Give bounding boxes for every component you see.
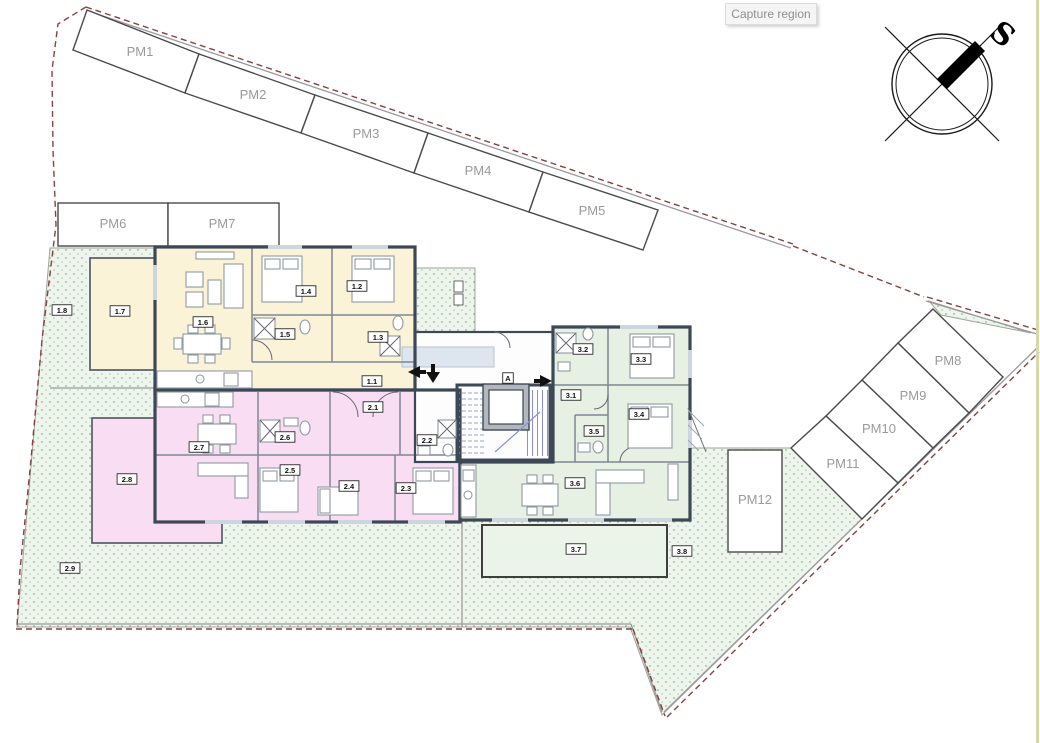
parking-label-PM5: PM5	[579, 203, 606, 218]
room-label-3.1: 3.1	[561, 390, 581, 401]
svg-text:1.3: 1.3	[373, 333, 383, 342]
parking-label-PM2: PM2	[240, 87, 267, 102]
svg-text:1.7: 1.7	[115, 307, 125, 316]
room-label-2.7: 2.7	[189, 442, 209, 453]
svg-text:3.1: 3.1	[566, 391, 576, 400]
vent-2	[454, 294, 463, 305]
armchair	[186, 272, 203, 287]
svg-text:3.2: 3.2	[578, 345, 588, 354]
parking-label-PM9: PM9	[900, 388, 927, 403]
room-label-2.2: 2.2	[417, 435, 437, 446]
room-label-1.3: 1.3	[368, 332, 388, 343]
sink	[418, 446, 430, 455]
svg-text:2.9: 2.9	[65, 564, 75, 573]
svg-text:2.2: 2.2	[422, 436, 432, 445]
sink	[284, 418, 298, 426]
sink	[464, 491, 472, 499]
svg-text:2.1: 2.1	[368, 403, 378, 412]
room-label-3.3: 3.3	[631, 354, 651, 365]
room-label-2.9: 2.9	[60, 563, 80, 574]
sideboard	[668, 464, 678, 500]
toilet	[393, 316, 403, 330]
stove	[463, 470, 474, 481]
shower	[254, 318, 275, 339]
svg-text:3.4: 3.4	[634, 410, 645, 419]
room-label-1.6: 1.6	[193, 317, 213, 328]
dining-table	[183, 334, 221, 354]
floor-plan-canvas: S PM1PM2PM3PM4PM5PM6PM7PM8PM9PM10PM11PM1…	[0, 0, 1040, 743]
parking-label-PM7: PM7	[209, 216, 236, 231]
room-label-2.3: 2.3	[396, 483, 416, 494]
svg-text:2.4: 2.4	[344, 482, 355, 491]
room-label-A: A	[503, 373, 514, 384]
svg-text:3.5: 3.5	[589, 427, 599, 436]
parking-label-PM8: PM8	[935, 353, 962, 368]
kitchen-counter	[157, 392, 233, 407]
svg-text:1.8: 1.8	[57, 306, 67, 315]
sink	[578, 443, 590, 452]
dining-table	[198, 424, 236, 444]
svg-text:3.8: 3.8	[677, 547, 687, 556]
svg-text:2.3: 2.3	[401, 484, 411, 493]
stove	[205, 393, 219, 406]
room-label-3.4: 3.4	[629, 409, 649, 420]
compass-rose: S	[885, 14, 1022, 141]
svg-text:3.7: 3.7	[571, 545, 581, 554]
room-label-2.8: 2.8	[117, 474, 137, 485]
coffee-table	[208, 280, 221, 304]
compass-needle	[937, 41, 985, 89]
svg-text:2.6: 2.6	[280, 433, 290, 442]
room-label-1.5: 1.5	[275, 329, 295, 340]
sofa	[198, 463, 248, 476]
parking-label-PM4: PM4	[465, 163, 492, 178]
parking-label-PM1: PM1	[127, 44, 154, 59]
svg-text:1.2: 1.2	[352, 282, 362, 291]
svg-text:2.5: 2.5	[285, 466, 295, 475]
sink	[558, 362, 570, 371]
svg-text:2.8: 2.8	[122, 475, 132, 484]
toilet	[583, 328, 593, 340]
room-label-3.5: 3.5	[584, 426, 604, 437]
room-label-3.7: 3.7	[566, 544, 586, 555]
room-label-1.7: 1.7	[110, 306, 130, 317]
shower	[438, 420, 456, 438]
room-label-3.2: 3.2	[573, 344, 593, 355]
parking-label-PM3: PM3	[353, 126, 380, 141]
room-label-2.6: 2.6	[275, 432, 295, 443]
room-label-1.4: 1.4	[296, 286, 316, 297]
toilet	[593, 441, 603, 453]
room-label-2.1: 2.1	[363, 402, 383, 413]
parking-label-PM12: PM12	[738, 492, 772, 507]
vent-1	[454, 281, 463, 292]
svg-text:1.4: 1.4	[301, 287, 312, 296]
toilet	[300, 320, 310, 334]
room-label-2.4: 2.4	[339, 481, 359, 492]
capture-region-tooltip: Capture region	[725, 3, 817, 25]
svg-text:1.6: 1.6	[198, 318, 208, 327]
sofa	[235, 476, 248, 498]
stair-treads-right	[527, 390, 550, 456]
room-label-3.8: 3.8	[672, 546, 692, 557]
room-label-1.1: 1.1	[362, 376, 382, 387]
dining-table	[522, 484, 558, 506]
sink	[196, 375, 204, 383]
toilet	[443, 444, 453, 456]
sink	[181, 395, 189, 403]
room-label-2.5: 2.5	[280, 465, 300, 476]
svg-text:A: A	[505, 374, 511, 383]
toilet	[300, 421, 310, 435]
parking-label-PM10: PM10	[862, 421, 896, 436]
svg-text:3.6: 3.6	[570, 479, 580, 488]
stair-treads-left	[459, 388, 486, 456]
capture-edge	[1036, 0, 1039, 743]
room-label-1.2: 1.2	[347, 281, 367, 292]
stove	[224, 373, 238, 386]
sofa	[224, 264, 243, 308]
armchair	[186, 292, 203, 307]
site-plan: S PM1PM2PM3PM4PM5PM6PM7PM8PM9PM10PM11PM1…	[0, 0, 1040, 743]
svg-text:1.1: 1.1	[367, 377, 377, 386]
sofa	[596, 483, 610, 515]
svg-text:1.5: 1.5	[280, 330, 290, 339]
tv-cabinet	[196, 252, 234, 259]
room-label-1.8: 1.8	[52, 305, 72, 316]
compass-south-label: S	[983, 14, 1022, 55]
parking-label-PM11: PM11	[827, 456, 860, 471]
room-label-3.6: 3.6	[565, 478, 585, 489]
svg-text:2.7: 2.7	[194, 443, 204, 452]
sofa	[596, 470, 644, 483]
svg-text:3.3: 3.3	[636, 355, 646, 364]
parking-label-PM6: PM6	[100, 216, 127, 231]
